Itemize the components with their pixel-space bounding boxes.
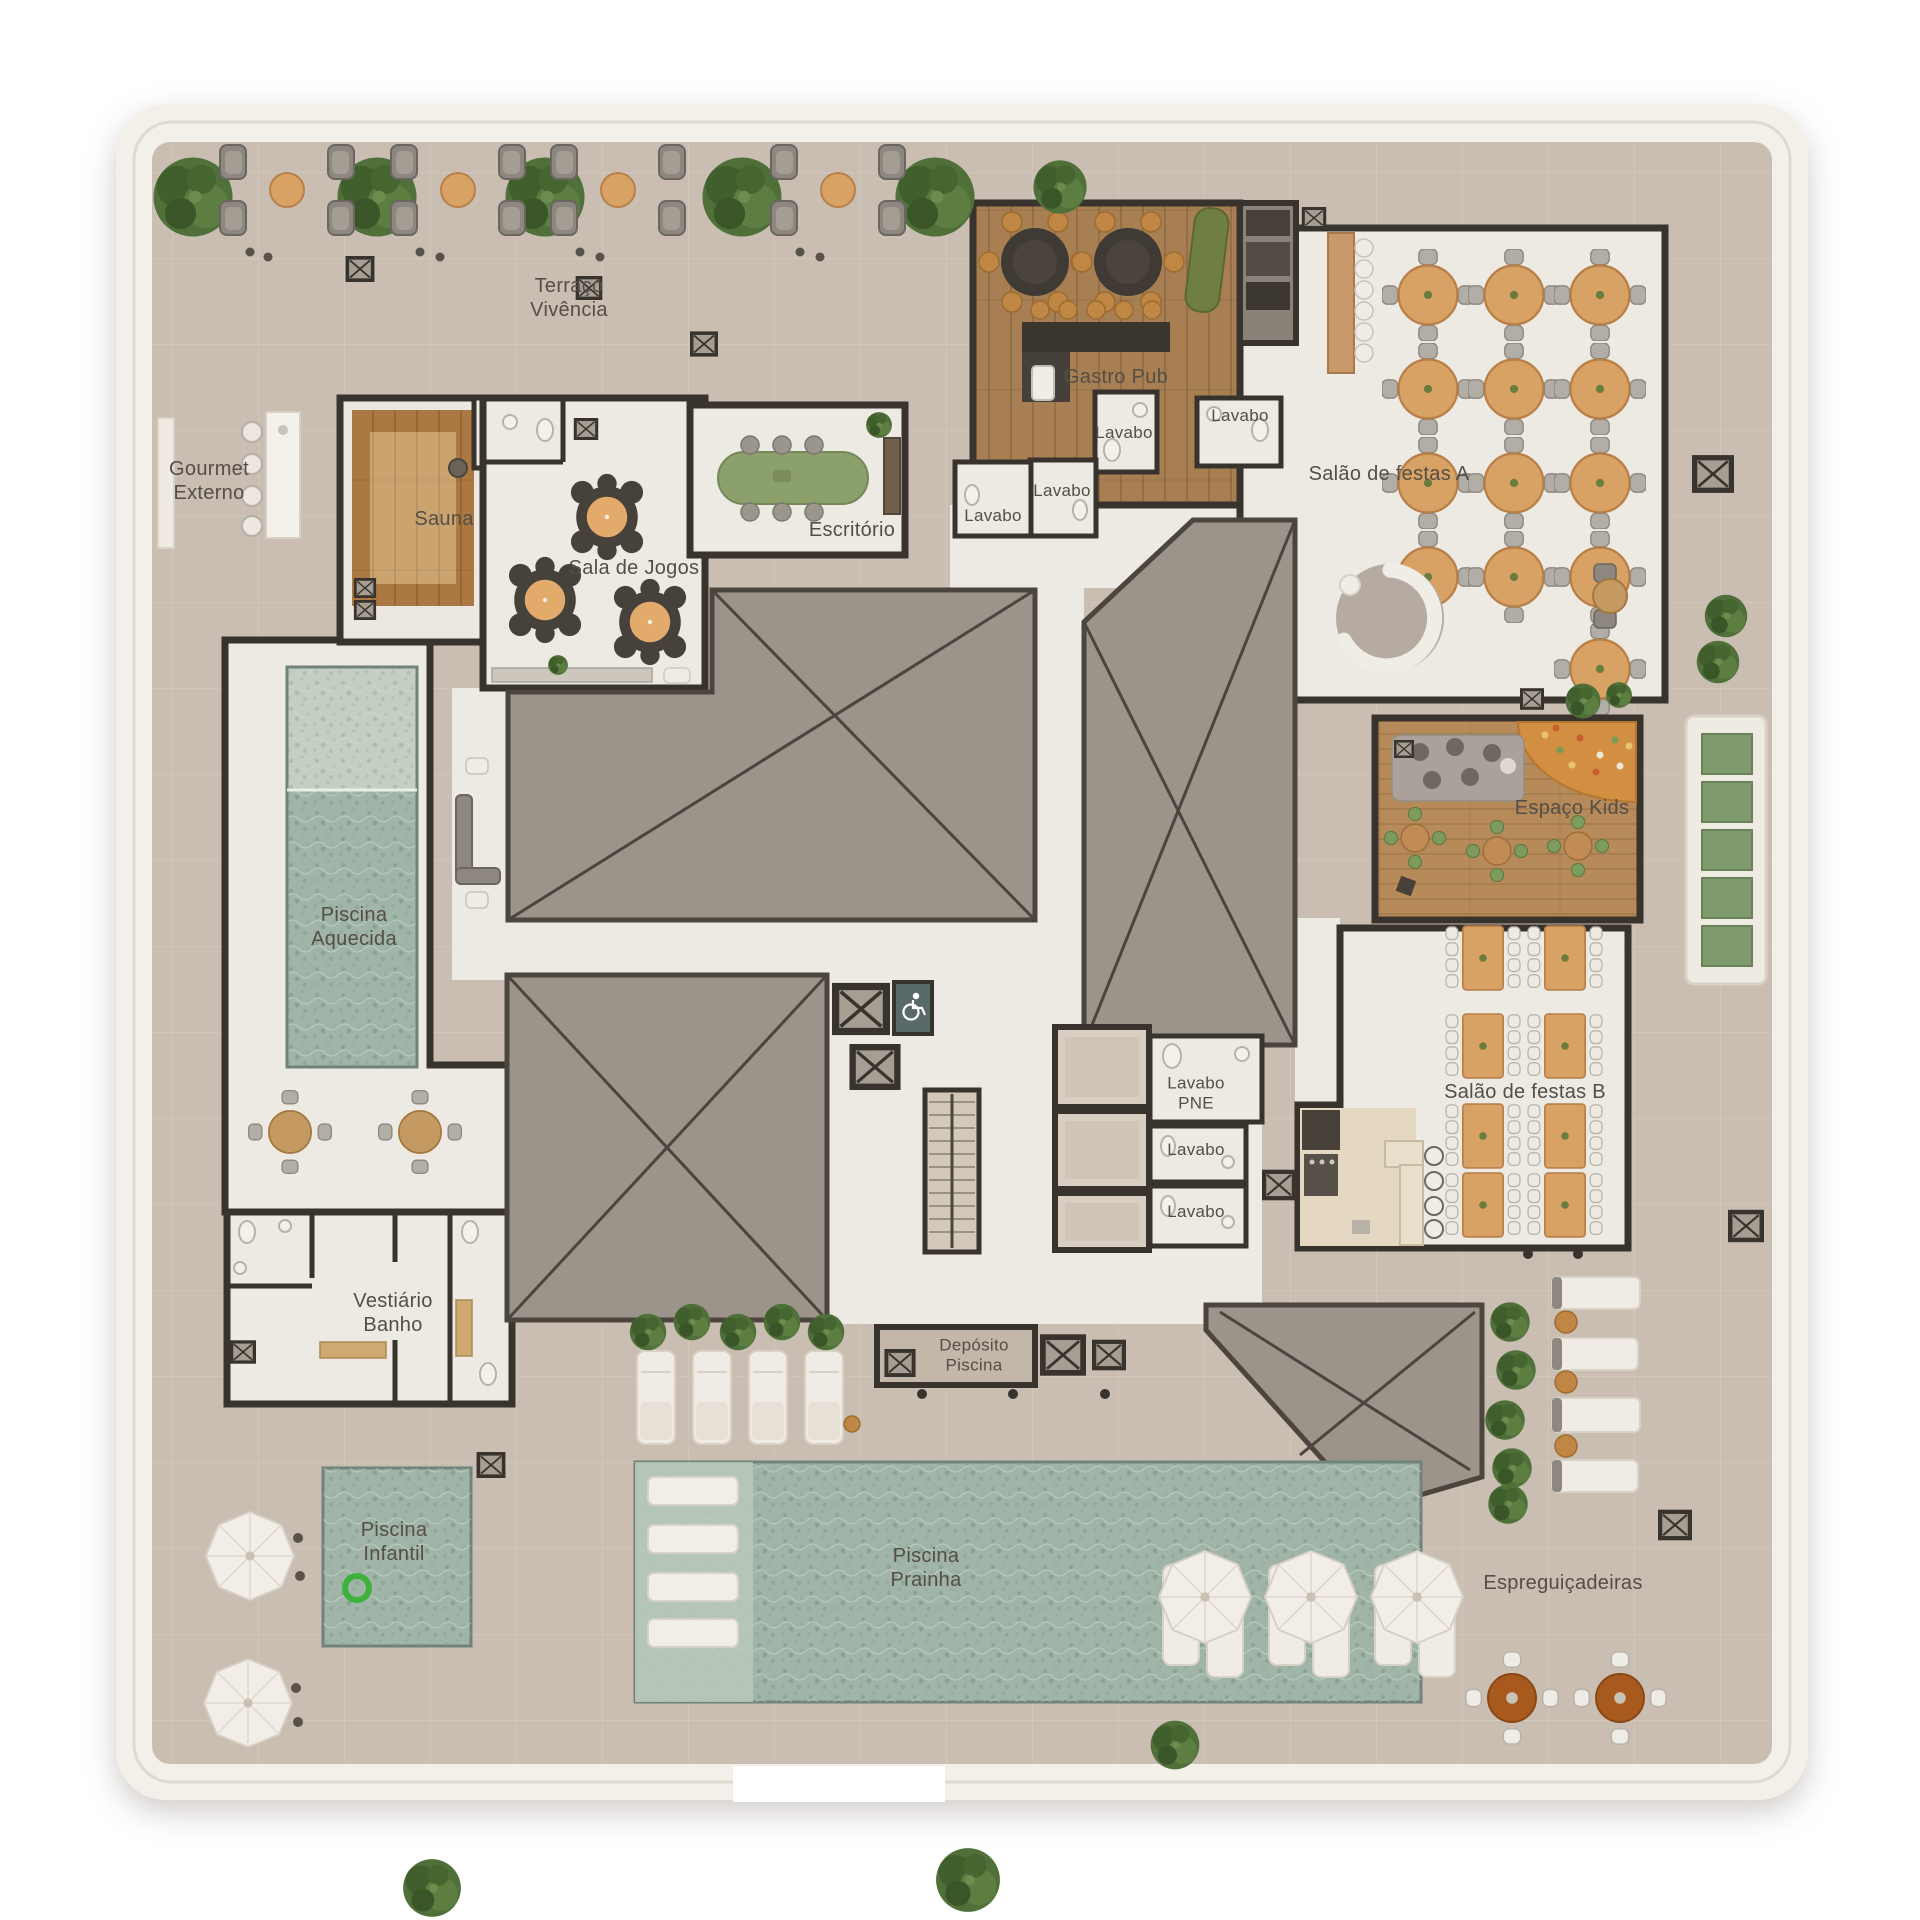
- room-label-lavabo: Lavabo: [964, 506, 1022, 526]
- plant: [1697, 641, 1740, 684]
- shaft-marker-icon: [1658, 1510, 1692, 1541]
- umbrella-icon: [1265, 1551, 1357, 1643]
- in-pool-lounger: [648, 1619, 738, 1647]
- accessible-elevator: [894, 982, 932, 1034]
- pub-bar-counter: [1022, 322, 1170, 352]
- umbrella-icon: [1159, 1551, 1251, 1643]
- shaft-marker-icon: [354, 578, 376, 598]
- shaft-marker-icon: [1262, 1170, 1296, 1201]
- room-label-sauna: Sauna: [414, 507, 473, 531]
- stairs: [925, 1090, 979, 1252]
- hedge-plant: [1492, 1448, 1532, 1488]
- umbrella-icon: [1371, 1551, 1463, 1643]
- in-pool-lounger: [648, 1573, 738, 1601]
- room-label-escritorio: Escritório: [809, 518, 895, 542]
- shaft-marker-icon: [1692, 455, 1734, 493]
- room-label-gastro-pub: Gastro Pub: [1064, 365, 1168, 389]
- hedge-plant: [1488, 1484, 1528, 1524]
- room-label-gourmet-externo: Gourmet Externo: [169, 457, 249, 505]
- shaft-marker-icon: [1302, 207, 1326, 229]
- plant: [1705, 595, 1748, 638]
- plant: [1033, 160, 1086, 213]
- sun-lounger: [749, 1351, 787, 1444]
- planter-pergola: [1686, 716, 1766, 984]
- plant: [403, 1859, 461, 1917]
- room-label-salao-de-festas-b: Salão de festas B: [1444, 1080, 1606, 1104]
- shaft-marker-icon: [354, 600, 376, 620]
- room-label-piscina-infantil: Piscina Infantil: [361, 1518, 428, 1566]
- room-salao-de-festas-a: [1240, 207, 1665, 715]
- hedge-plant: [674, 1304, 710, 1340]
- games-sideboard: [492, 668, 652, 682]
- plate-notch: [733, 1766, 945, 1802]
- hedge-plant: [630, 1314, 666, 1350]
- room-label-lavabo: Lavabo: [1167, 1202, 1225, 1222]
- shaft-marker-icon: [477, 1452, 506, 1478]
- hedge-plant: [720, 1314, 756, 1350]
- sauna-heater: [449, 459, 467, 477]
- room-label-lavabo: Lavabo: [1095, 423, 1153, 443]
- shaft-marker-icon: [1394, 740, 1414, 758]
- office-cabinet: [884, 438, 900, 514]
- umbrella-icon: [206, 1512, 294, 1600]
- meeting-table: [718, 452, 868, 504]
- room-label-lavabo: Lavabo: [1033, 481, 1091, 501]
- game-table: [614, 579, 686, 665]
- void-block: [507, 975, 827, 1320]
- shaft-marker-icon: [1092, 1340, 1126, 1371]
- room-label-lavabo-pne: Lavabo PNE: [1167, 1074, 1225, 1115]
- elevator-bank: [1055, 1027, 1149, 1250]
- room-label-terraco-vivencia: Terraço Vivência: [530, 274, 608, 322]
- room-label-espaco-kids: Espaço Kids: [1515, 796, 1629, 820]
- floorplan-svg: [0, 0, 1920, 1920]
- room-label-lavabo: Lavabo: [1167, 1140, 1225, 1160]
- shaft-marker-icon: [884, 1349, 915, 1377]
- shaft-marker-icon: [1040, 1334, 1086, 1375]
- plant: [936, 1848, 1000, 1912]
- room-label-piscina-prainha: Piscina Prainha: [890, 1544, 961, 1592]
- shaft-marker-icon: [230, 1340, 256, 1363]
- plant: [866, 412, 892, 438]
- room-label-piscina-aquecida: Piscina Aquecida: [311, 903, 397, 951]
- room-label-vestiario-banho: Vestiário Banho: [353, 1289, 432, 1337]
- in-pool-lounger: [648, 1525, 738, 1553]
- plant: [548, 655, 568, 675]
- shaft-marker-icon: [1520, 688, 1544, 710]
- room-sala-de-jogos: [483, 398, 705, 688]
- shaft-marker-icon: [832, 983, 890, 1035]
- plant: [1566, 684, 1601, 719]
- room-label-lavabo: Lavabo: [1211, 406, 1269, 426]
- plant: [1151, 1721, 1200, 1770]
- shaft-marker-icon: [574, 418, 598, 440]
- hedge-plant: [1496, 1350, 1536, 1390]
- kitchen-counter: [1385, 1141, 1423, 1167]
- plant: [1606, 682, 1632, 708]
- plant: [702, 157, 781, 236]
- side-table: [1593, 579, 1627, 613]
- room-label-salao-de-festas-a: Salão de festas A: [1309, 462, 1470, 486]
- hedge-plant: [1490, 1302, 1530, 1342]
- in-pool-lounger: [648, 1477, 738, 1505]
- void-block: [1084, 520, 1295, 1045]
- hedge-plant: [1485, 1400, 1525, 1440]
- umbrella-icon: [204, 1659, 292, 1747]
- locker-bench: [320, 1342, 386, 1358]
- game-table: [571, 474, 643, 560]
- room-label-espreguicadeiras: Espreguiçadeiras: [1483, 1571, 1642, 1595]
- room-label-sala-de-jogos: Sala de Jogos: [569, 556, 700, 580]
- room-label-deposito-piscina: Depósito Piscina: [939, 1336, 1009, 1377]
- sun-lounger: [693, 1351, 731, 1444]
- floorplan-canvas: Terraço Vivência Gourmet Externo Sauna S…: [0, 0, 1920, 1920]
- shaft-marker-icon: [690, 331, 718, 356]
- sun-lounger: [805, 1351, 843, 1444]
- sun-lounger: [637, 1351, 675, 1444]
- shaft-marker-icon: [346, 256, 375, 282]
- shaft-marker-icon: [1728, 1210, 1764, 1242]
- buffet-counter: [1328, 233, 1354, 373]
- hedge-plant: [808, 1314, 844, 1350]
- hedge-plant: [764, 1304, 800, 1340]
- shaft-marker-icon: [849, 1044, 900, 1090]
- plant: [895, 157, 974, 236]
